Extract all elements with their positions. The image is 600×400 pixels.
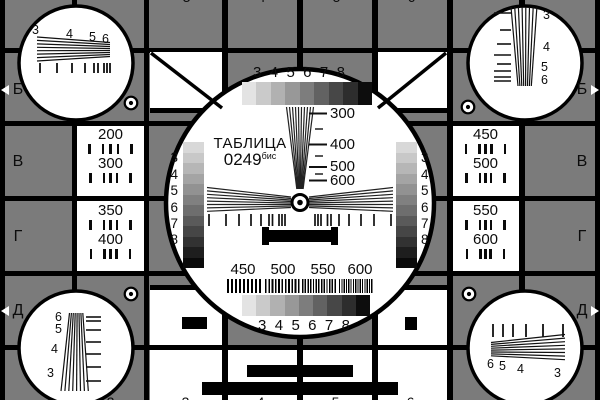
edge-digit-bottom: 4 (255, 394, 266, 400)
wedge-label: 3 (554, 367, 561, 380)
edge-digit-bottom: 3 (180, 394, 191, 400)
grid-line (5, 271, 595, 276)
row-letter-right: В (574, 154, 590, 170)
card-number-suffix: бис (262, 151, 277, 161)
grid-line (150, 285, 222, 290)
resolution-lines (77, 173, 144, 183)
freq-label-300: 300 (77, 156, 144, 171)
column-label: 7 (163, 217, 178, 231)
edge-digit-bottom: 2 (105, 394, 116, 400)
edge-digit-top: 3 (181, 0, 192, 5)
scale-label: 3 (253, 64, 261, 81)
freq-label-550: 550 (452, 203, 519, 218)
wedge-label: 6 (102, 33, 109, 46)
resolution-lines (452, 249, 519, 259)
freq-label-600: 600 (452, 232, 519, 247)
ruler-mark: 400 (330, 137, 355, 152)
edge-arrow-icon (1, 306, 9, 316)
edge-digit-top: 5 (331, 0, 342, 5)
column-label: 4 (421, 168, 429, 182)
row-letter-left: В (10, 154, 26, 170)
scale-label: 8 (342, 317, 350, 334)
burst-band-550 (302, 279, 337, 293)
grid-line (595, 0, 600, 400)
grayscale-column-left (183, 142, 204, 268)
card-number-text: 0249 (224, 150, 262, 169)
test-card-0249: 3 4 5 6 7 8 3 4 5 6 7 8 3 4 5 6 7 8 3 4 … (0, 0, 600, 400)
sync-bar-short (247, 365, 353, 377)
scale-label: 7 (320, 64, 328, 81)
wedge-label: 5 (499, 360, 506, 373)
corner-circle-top-right (468, 6, 582, 120)
resolution-lines (452, 220, 519, 230)
freq-label-400: 400 (77, 232, 144, 247)
scale-label: 3 (258, 317, 266, 334)
wedge-label: 4 (543, 41, 550, 54)
row-letter-left: Д (10, 303, 26, 319)
scale-label: 4 (270, 64, 278, 81)
column-label: 3 (421, 151, 429, 165)
scale-label: 4 (275, 317, 283, 334)
scale-label: 6 (303, 64, 311, 81)
black-rectangle-mark (182, 317, 207, 329)
scale-label: 5 (286, 64, 294, 81)
top-scale-labels: 3 4 5 6 7 8 (253, 64, 345, 81)
burst-band-500 (265, 279, 300, 293)
freq-label-350: 350 (77, 203, 144, 218)
wedge-label: 3 (47, 367, 54, 380)
column-label: 6 (421, 201, 429, 215)
black-reference-bar (262, 230, 338, 242)
freq-label-450: 450 (452, 127, 519, 142)
wedge-label: 6 (541, 74, 548, 87)
row-letter-left: Г (10, 229, 26, 245)
freq-label-200: 200 (77, 127, 144, 142)
column-label: 5 (421, 184, 429, 198)
burst-label: 600 (344, 262, 376, 277)
row-letter-left: Б (10, 82, 26, 98)
burst-label: 550 (307, 262, 339, 277)
resolution-lines (77, 249, 144, 259)
wedge-ticks-top-right (494, 13, 511, 81)
resolution-lines (452, 173, 519, 183)
wedge-label: 5 (89, 31, 96, 44)
burst-label: 450 (227, 262, 259, 277)
edge-arrow-icon (591, 306, 599, 316)
grayscale-staircase-bottom (242, 295, 370, 316)
sync-bar-wide (202, 382, 398, 395)
wedge-label: 4 (51, 343, 58, 356)
grayscale-staircase-top (242, 82, 372, 105)
edge-arrow-icon (1, 85, 9, 95)
grayscale-column-right (396, 142, 417, 268)
wedge-label: 4 (66, 28, 73, 41)
bottom-scale-labels: 3 4 5 6 7 8 (258, 317, 350, 334)
wedge-label: 6 (487, 358, 494, 371)
column-label: 7 (421, 217, 429, 231)
wedge-label: 3 (543, 9, 550, 22)
scale-label: 6 (308, 317, 316, 334)
wedge-label: 5 (55, 323, 62, 336)
black-square-mark (405, 317, 417, 330)
column-label: 8 (421, 233, 429, 247)
burst-label: 500 (267, 262, 299, 277)
card-title: ТАБЛИЦА (213, 136, 287, 151)
grid-line (5, 345, 595, 350)
resolution-lines (77, 220, 144, 230)
wedge-label: 4 (517, 363, 524, 376)
column-label: 5 (163, 184, 178, 198)
column-label: 3 (163, 151, 178, 165)
ruler-mark: 300 (330, 106, 355, 121)
ruler-mark: 600 (330, 173, 355, 188)
wedge-label: 3 (32, 24, 39, 37)
grid-line (150, 108, 222, 113)
column-label: 4 (163, 168, 178, 182)
row-letter-right: Г (574, 229, 590, 245)
edge-digit-top: 6 (406, 0, 417, 5)
grid-line (378, 285, 447, 290)
row-letter-right: Д (574, 303, 590, 319)
scale-label: 8 (337, 64, 345, 81)
edge-arrow-icon (591, 85, 599, 95)
freq-label-500: 500 (452, 156, 519, 171)
resolution-lines (452, 144, 519, 154)
wedge-label: 5 (541, 61, 548, 74)
burst-band-450 (227, 279, 263, 293)
scale-label: 5 (291, 317, 299, 334)
column-label: 6 (163, 201, 178, 215)
edge-digit-top: 4 (256, 0, 267, 5)
grid-line (5, 48, 595, 53)
burst-band-600 (339, 279, 373, 293)
scale-label: 7 (325, 317, 333, 334)
edge-digit-bottom: 5 (330, 394, 341, 400)
resolution-lines (77, 144, 144, 154)
card-number: 0249бис (213, 151, 287, 168)
column-label: 8 (163, 233, 178, 247)
wedge-ticks-bottom-right (493, 324, 563, 337)
grid-line (378, 108, 447, 113)
cell-diagonal-right (378, 52, 447, 108)
edge-digit-bottom: 6 (405, 394, 416, 400)
cell-diagonal-left (150, 52, 222, 108)
row-letter-right: Б (574, 82, 590, 98)
